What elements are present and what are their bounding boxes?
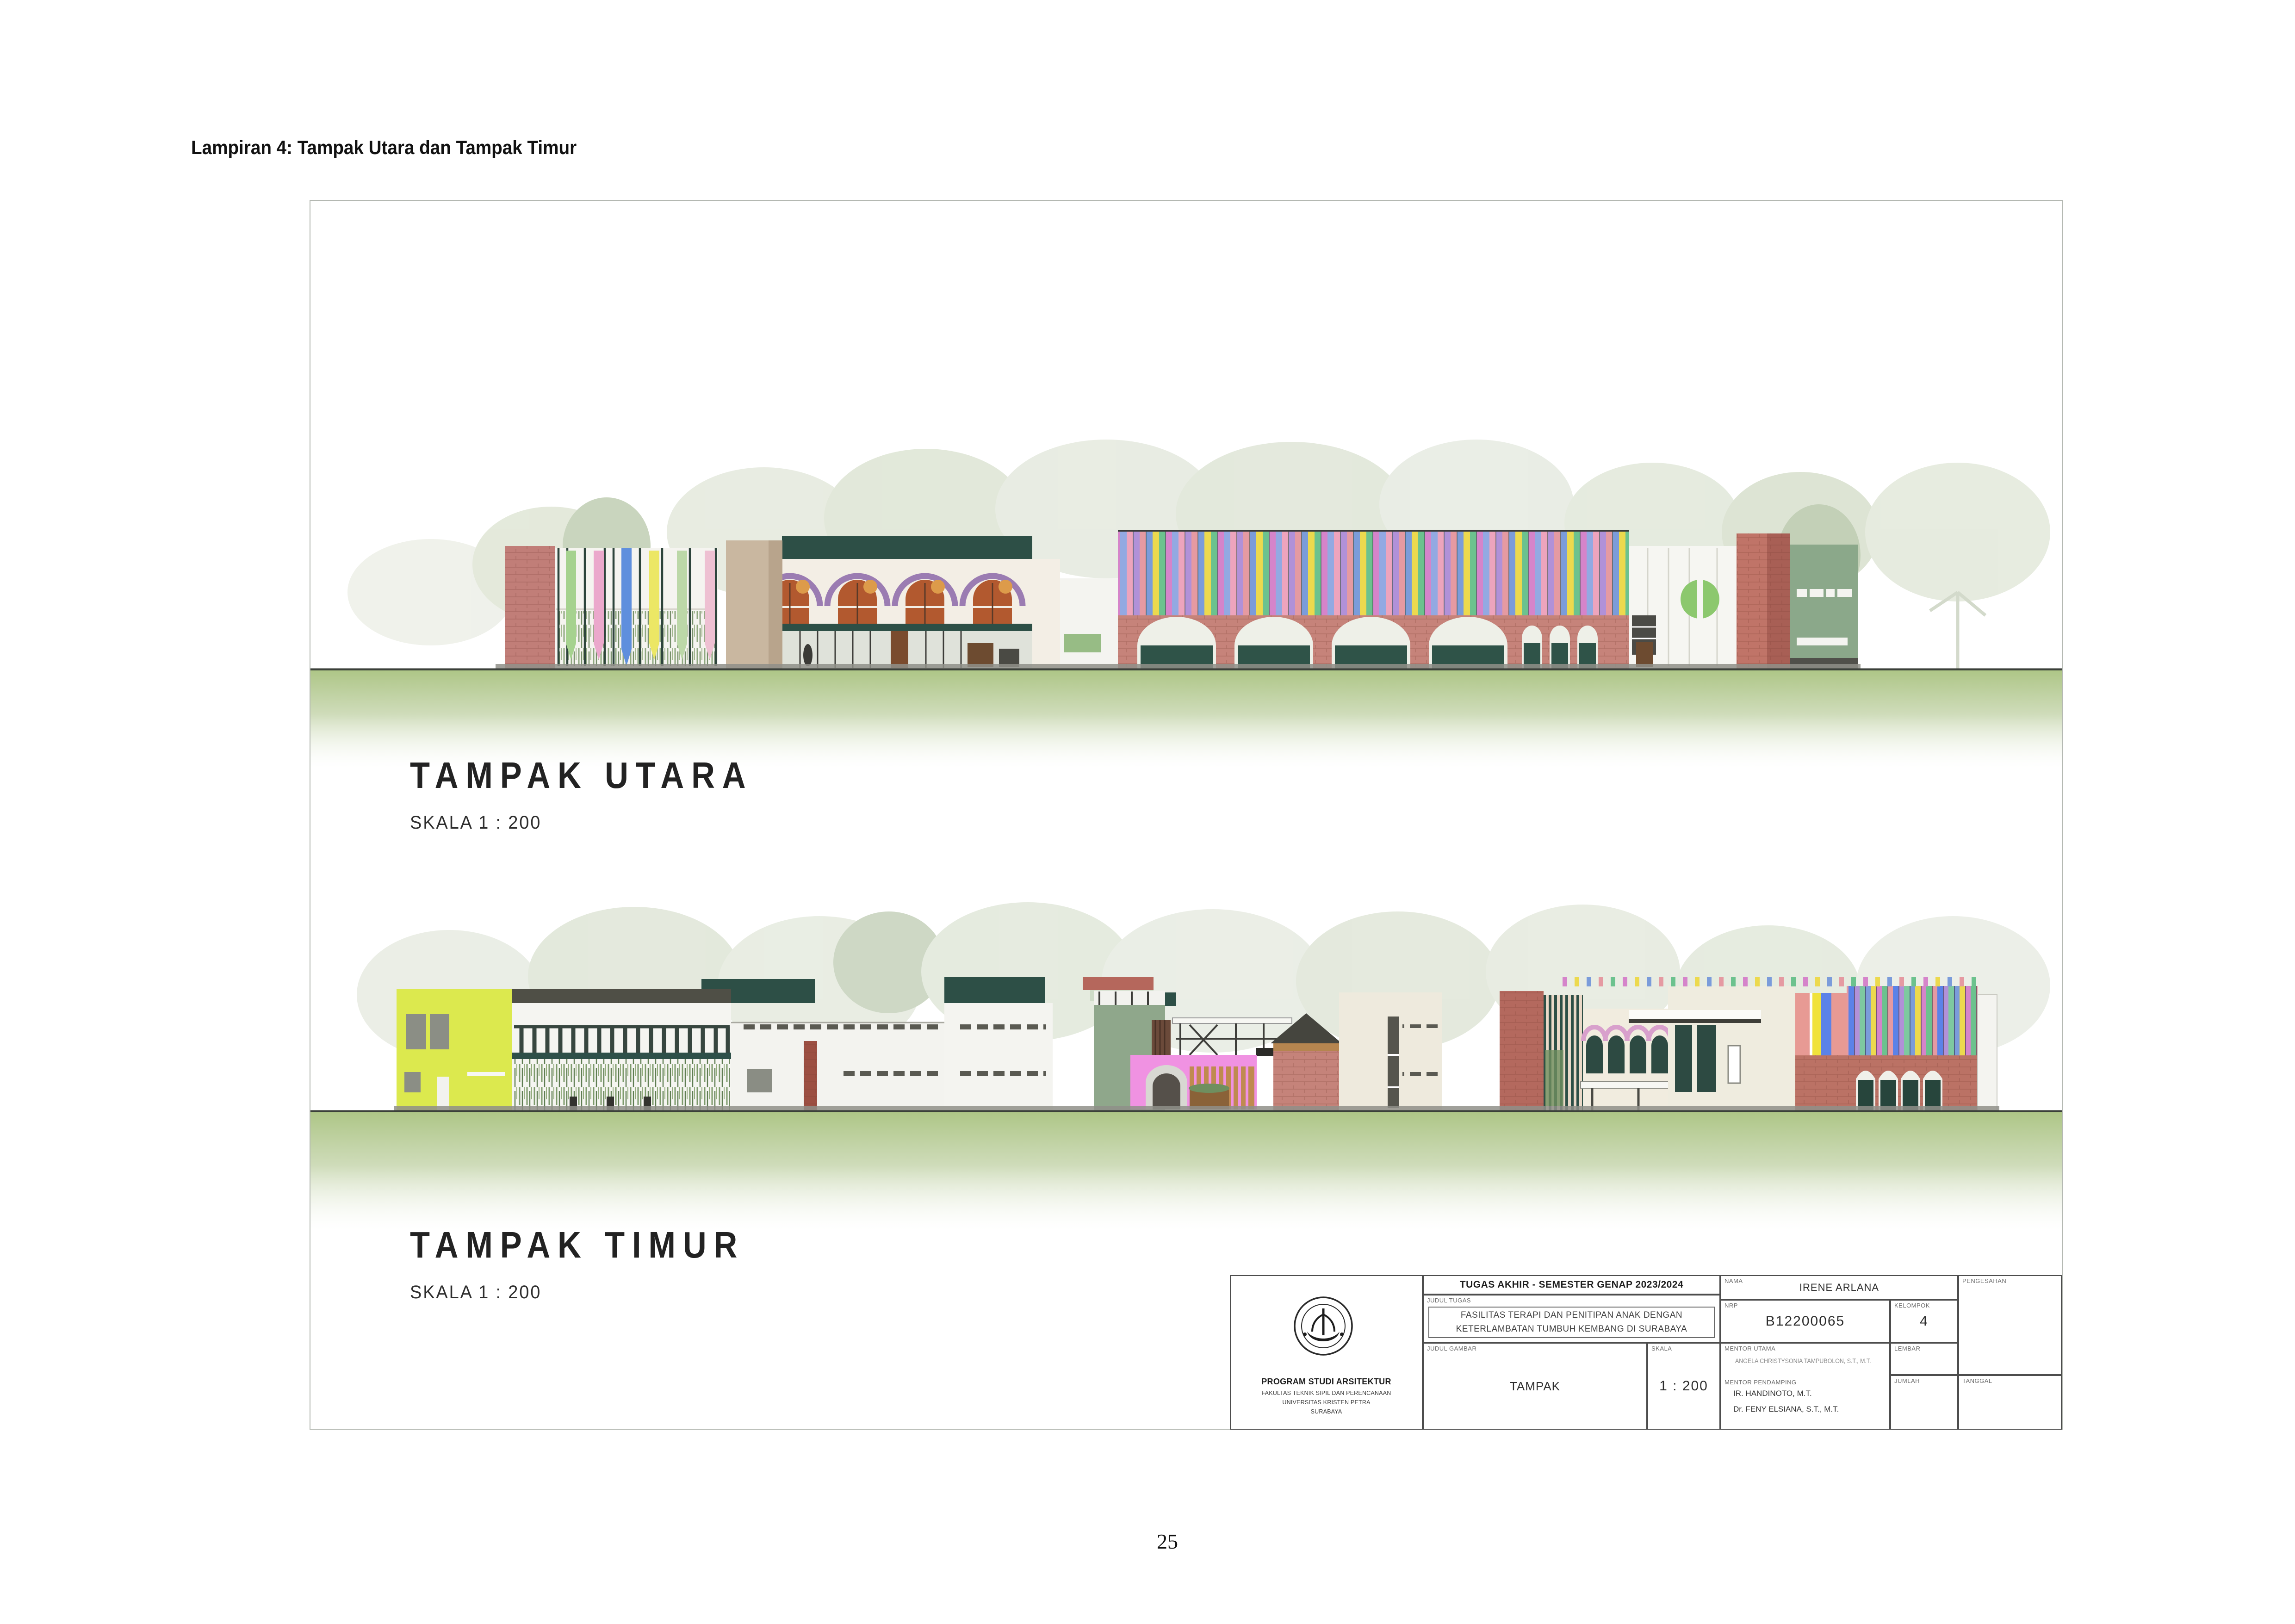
north-ground-band: [310, 670, 2062, 768]
institution-university: UNIVERSITAS KRISTEN PETRA: [1231, 1399, 1422, 1406]
lembar-label: LEMBAR: [1894, 1345, 1920, 1352]
pengesahan-label: PENGESAHAN: [1962, 1277, 2006, 1284]
institution-city: SURABAYA: [1231, 1408, 1422, 1415]
judul-tugas-line1: FASILITAS TERAPI DAN PENITIPAN ANAK DENG…: [1461, 1310, 1682, 1320]
kelompok-cell: KELOMPOK 4: [1890, 1300, 1958, 1343]
skala-label: SKALA: [1651, 1345, 1672, 1352]
skala-value: 1 : 200: [1648, 1344, 1719, 1429]
nama-label: NAMA: [1724, 1277, 1743, 1284]
mentor-pendamping-label: MENTOR PENDAMPING: [1724, 1379, 1797, 1386]
judul-tugas-box: FASILITAS TERAPI DAN PENITIPAN ANAK DENG…: [1428, 1307, 1715, 1338]
judul-gambar-cell: JUDUL GAMBAR TAMPAK: [1423, 1343, 1647, 1430]
north-elevation-drawing: [310, 393, 2062, 768]
mentor-utama-label: MENTOR UTAMA: [1724, 1345, 1775, 1352]
mentor-cell: MENTOR UTAMA ANGELA CHRISTYSONIA TAMPUBO…: [1720, 1343, 1890, 1430]
institution-program: PROGRAM STUDI ARSITEKTUR: [1231, 1377, 1422, 1387]
tanggal-cell: TANGGAL: [1958, 1375, 2062, 1430]
jumlah-label: JUMLAH: [1894, 1377, 1920, 1384]
nama-value: IRENE ARLANA: [1721, 1276, 1957, 1299]
lembar-cell: LEMBAR: [1890, 1343, 1958, 1375]
mentor-utama-name: ANGELA CHRISTYSONIA TAMPUBOLON, S.T., M.…: [1735, 1357, 1871, 1364]
mentor-pendamping-2: Dr. FENY ELSIANA, S.T., M.T.: [1733, 1405, 1839, 1414]
nama-cell: NAMA IRENE ARLANA: [1720, 1275, 1958, 1300]
project-header-cell: TUGAS AKHIR - SEMESTER GENAP 2023/2024: [1423, 1275, 1720, 1295]
university-seal-icon: [1231, 1280, 1424, 1372]
institution-faculty: FAKULTAS TEKNIK SIPIL DAN PERENCANAAN: [1231, 1390, 1422, 1396]
skala-cell: SKALA 1 : 200: [1647, 1343, 1720, 1430]
nrp-label: NRP: [1724, 1302, 1738, 1309]
judul-tugas-line2: KETERLAMBATAN TUMBUH KEMBANG DI SURABAYA: [1456, 1324, 1687, 1334]
judul-tugas-cell: JUDUL TUGAS FASILITAS TERAPI DAN PENITIP…: [1423, 1295, 1720, 1343]
east-elevation-drawing: [310, 856, 2062, 1231]
north-elevation-scale: SKALA 1 : 200: [410, 812, 780, 833]
mentor-pendamping-1: IR. HANDINOTO, M.T.: [1733, 1389, 1812, 1398]
nrp-value: B12200065: [1721, 1301, 1889, 1342]
title-block: PROGRAM STUDI ARSITEKTUR FAKULTAS TEKNIK…: [1230, 1275, 2062, 1430]
project-header: TUGAS AKHIR - SEMESTER GENAP 2023/2024: [1424, 1276, 1719, 1294]
tanggal-label: TANGGAL: [1962, 1377, 1992, 1384]
east-elevation-scale: SKALA 1 : 200: [410, 1282, 771, 1303]
pencil-fringe: [1558, 977, 1978, 986]
east-elevation-caption: TAMPAK TIMUR SKALA 1 : 200: [410, 1224, 790, 1303]
judul-gambar-label: JUDUL GAMBAR: [1427, 1345, 1476, 1352]
nrp-cell: NRP B12200065: [1720, 1300, 1890, 1343]
judul-gambar-value: TAMPAK: [1424, 1344, 1646, 1429]
east-ground-band: [310, 1112, 2062, 1231]
document-page: Lampiran 4: Tampak Utara dan Tampak Timu…: [0, 0, 2295, 1624]
east-elevation-title: TAMPAK TIMUR: [410, 1224, 744, 1266]
page-number: 25: [1157, 1529, 1178, 1554]
kelompok-label: KELOMPOK: [1894, 1302, 1930, 1309]
north-elevation-caption: TAMPAK UTARA SKALA 1 : 200: [410, 754, 800, 833]
judul-tugas-label: JUDUL TUGAS: [1427, 1297, 1471, 1304]
institution-cell: PROGRAM STUDI ARSITEKTUR FAKULTAS TEKNIK…: [1230, 1275, 1423, 1430]
appendix-heading: Lampiran 4: Tampak Utara dan Tampak Timu…: [191, 136, 577, 159]
jumlah-cell: JUMLAH: [1890, 1375, 1958, 1430]
north-buildings: [505, 531, 1858, 670]
pengesahan-cell: PENGESAHAN: [1958, 1275, 2062, 1375]
north-elevation-title: TAMPAK UTARA: [410, 754, 753, 797]
